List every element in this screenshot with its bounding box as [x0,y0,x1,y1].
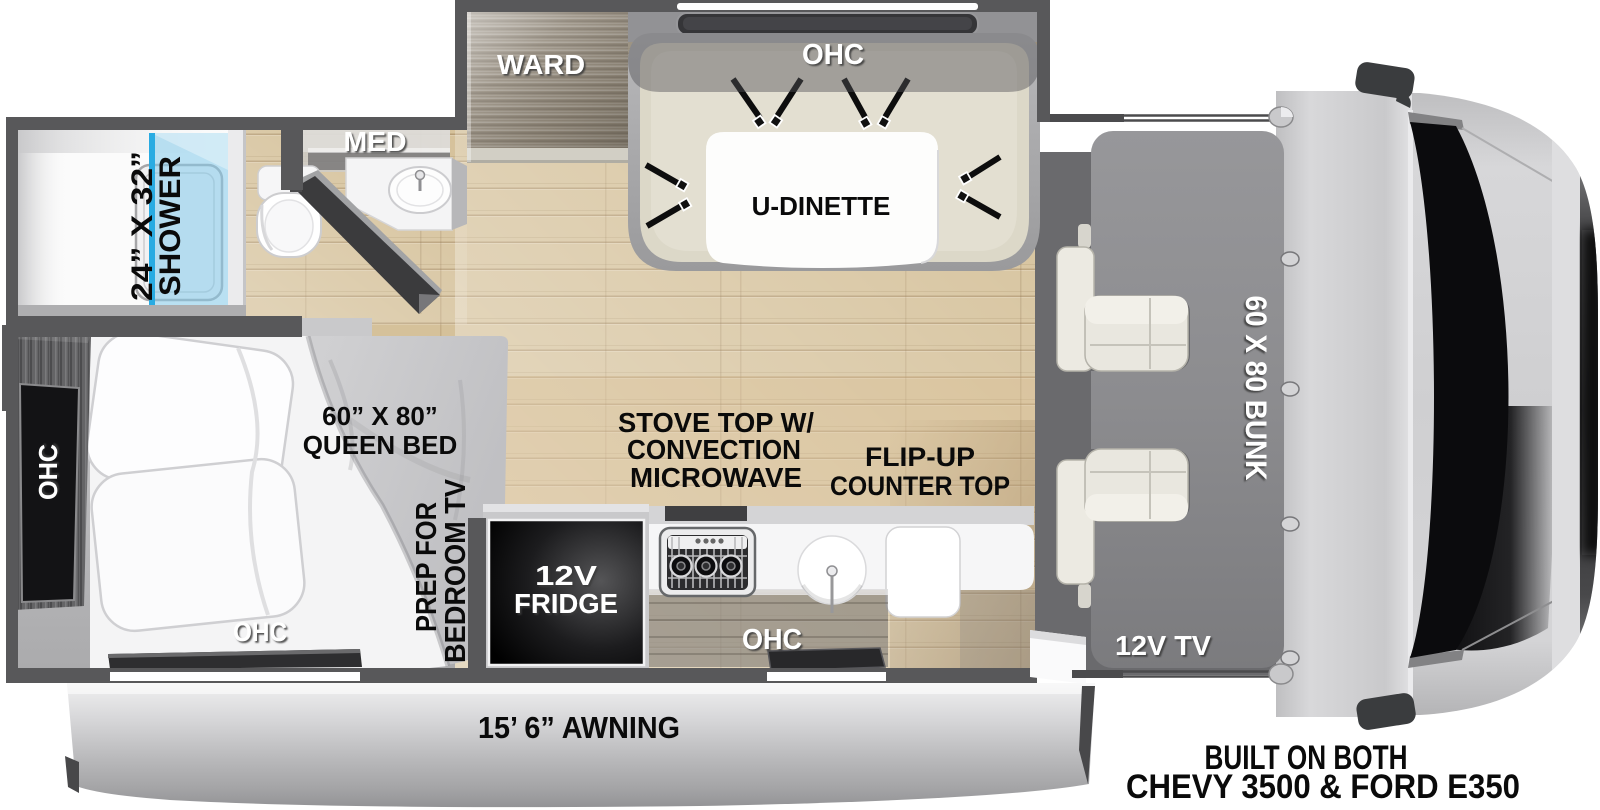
svg-text:OHC: OHC [742,624,802,656]
svg-text:MED: MED [344,126,407,157]
svg-text:OHC: OHC [33,444,63,500]
svg-text:12V TV: 12V TV [1115,630,1211,661]
svg-text:WARD: WARD [497,49,585,80]
svg-text:SHOWER: SHOWER [154,156,187,296]
svg-text:FLIP-UP: FLIP-UP [865,442,975,472]
svg-text:FRIDGE: FRIDGE [514,588,618,619]
svg-text:QUEEN BED: QUEEN BED [303,430,458,460]
svg-text:OHC: OHC [233,617,287,647]
svg-text:15’ 6” AWNING: 15’ 6” AWNING [478,710,680,745]
svg-text:U-DINETTE: U-DINETTE [752,191,891,221]
svg-text:12V: 12V [535,560,597,591]
svg-text:MICROWAVE: MICROWAVE [630,462,802,493]
svg-text:60 X 80 BUNK: 60 X 80 BUNK [1239,296,1272,481]
svg-text:COUNTER TOP: COUNTER TOP [830,471,1010,501]
svg-text:60” X 80”: 60” X 80” [322,401,438,431]
svg-text:CONVECTION: CONVECTION [627,434,801,465]
svg-text:BEDROOM TV: BEDROOM TV [440,478,472,663]
svg-text:OHC: OHC [802,39,864,71]
svg-text:CHEVY 3500 & FORD E350: CHEVY 3500 & FORD E350 [1126,768,1520,806]
svg-text:PREP FOR: PREP FOR [411,502,443,632]
